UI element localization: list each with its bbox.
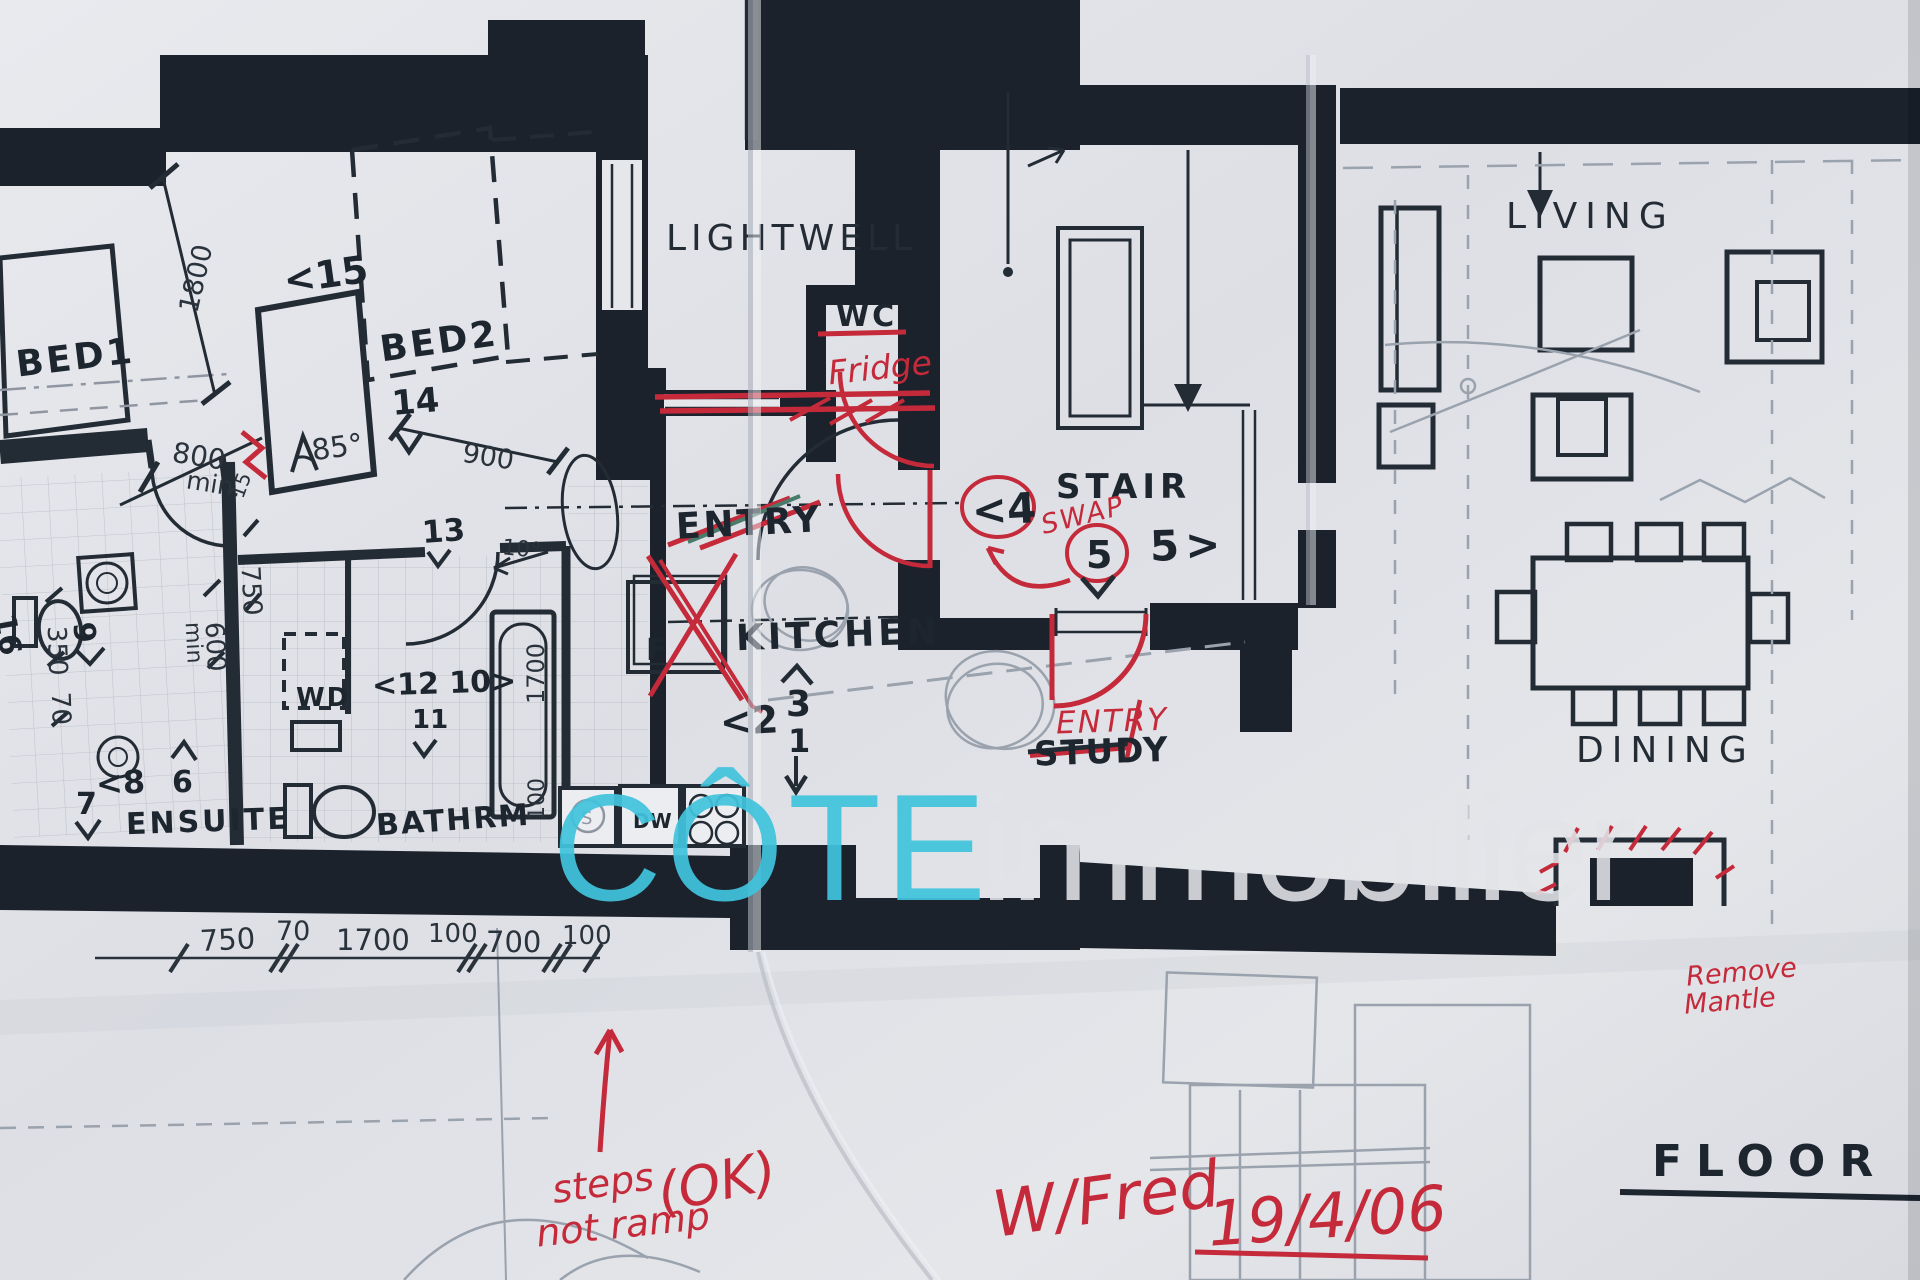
angle-85: 85° xyxy=(310,427,366,468)
chain-100a: 100 xyxy=(428,919,478,949)
marker-3: 3 xyxy=(786,684,811,725)
marker-13: 13 xyxy=(421,512,467,551)
chain-70: 70 xyxy=(276,916,310,947)
note-entry-new: ENTRY xyxy=(1055,702,1168,742)
marker-8: <8 xyxy=(95,762,146,803)
room-label-lightwell: LIGHTWELL xyxy=(666,218,917,259)
dim-600-min: min xyxy=(180,621,207,664)
watermark-brand: CÔTE xyxy=(552,763,990,933)
chain-750: 750 xyxy=(199,921,256,958)
room-label-wc: WC xyxy=(836,299,897,334)
floorplan-photo: BED1 BED2 LIGHTWELL WC KITCHEN ENTRY STA… xyxy=(0,0,1920,1280)
marker-4: <4 xyxy=(971,483,1038,535)
floorplan-sketch: BED1 BED2 LIGHTWELL WC KITCHEN ENTRY STA… xyxy=(0,0,1920,1280)
marker-5-right: 5> xyxy=(1149,519,1227,571)
marker-1: 1 xyxy=(788,722,810,760)
room-label-ensuite: ENSUITE xyxy=(125,801,291,842)
chain-1700: 1700 xyxy=(336,923,410,957)
fridge-box-label: F xyxy=(646,633,667,668)
marker-5: 5 xyxy=(1086,533,1112,577)
dim-750-v: 750 xyxy=(234,565,267,616)
dim-350-v: 350 xyxy=(41,625,73,676)
chain-700: 700 xyxy=(486,925,541,959)
watermark-suffix: immobilier xyxy=(980,764,1634,932)
marker-7: 7 xyxy=(76,787,97,822)
room-label-living: LIVING xyxy=(1506,196,1675,237)
angle-10: 10° xyxy=(501,535,542,564)
dim-1700-v: 1700 xyxy=(522,643,550,704)
marker-11: 11 xyxy=(412,705,448,735)
watermark: CÔTE immobilier xyxy=(552,763,1634,933)
marker-14: 14 xyxy=(390,380,441,424)
room-label-wd: WD xyxy=(296,683,350,713)
marker-12-10: <12 10> xyxy=(371,664,516,704)
marker-6: 6 xyxy=(172,765,193,800)
room-label-kitchen: KITCHEN xyxy=(735,611,941,659)
floor-plan-title: FLOOR PLA xyxy=(1652,1136,1920,1187)
dim-100-v: 100 xyxy=(525,778,550,820)
dim-70-v: 70 xyxy=(45,691,76,725)
